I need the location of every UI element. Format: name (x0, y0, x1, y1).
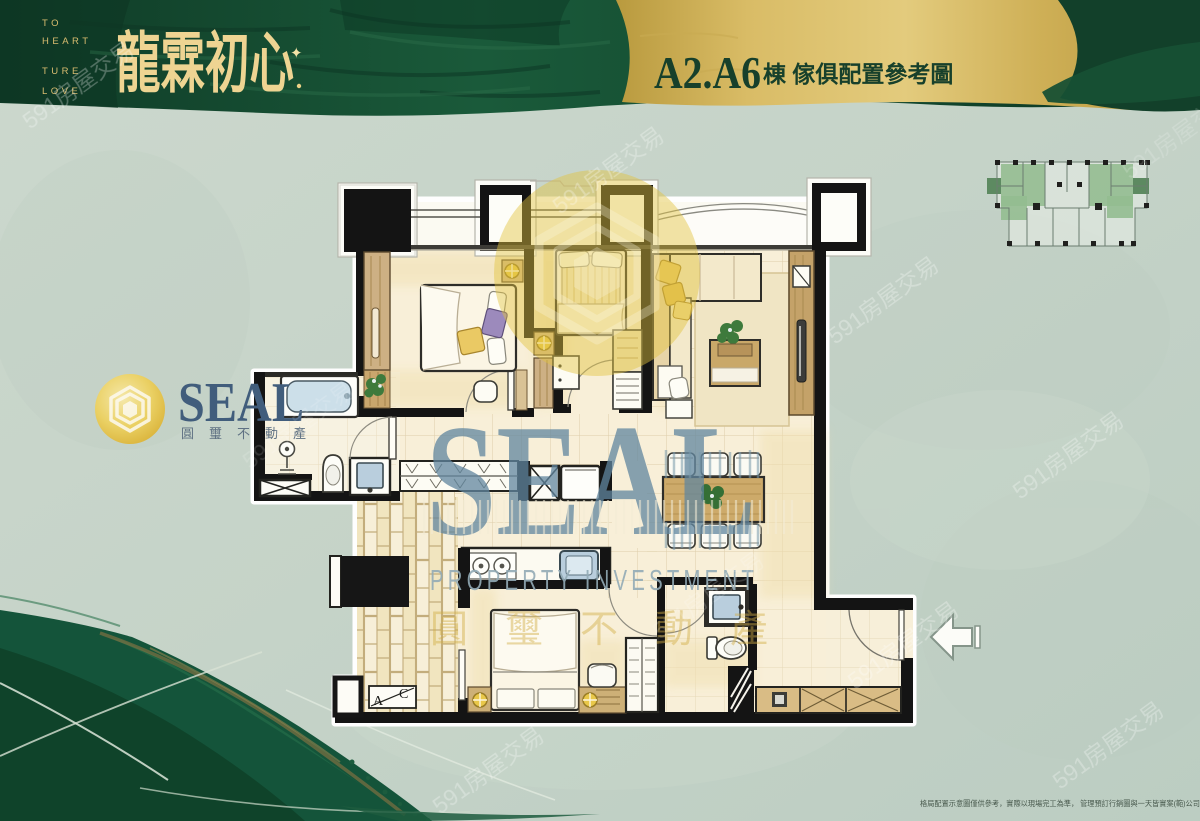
svg-text:圓璽不動產: 圓璽不動產 (430, 609, 805, 651)
svg-text:龍霖初心: 龍霖初心 (116, 28, 294, 101)
svg-text:A2.A6: A2.A6 (654, 47, 761, 98)
svg-text:TO: TO (42, 18, 62, 29)
svg-text:✦: ✦ (290, 45, 303, 62)
svg-text:SEAL: SEAL (426, 391, 756, 569)
svg-text:格局配置示意圖僅供參考，實際以現場完工為準， 管理預訂行銷: 格局配置示意圖僅供參考，實際以現場完工為準， 管理預訂行銷圖與一天皆實案(範)公… (920, 799, 1200, 808)
svg-text:棟 傢俱配置參考圖: 棟 傢俱配置參考圖 (763, 61, 953, 87)
svg-text:C: C (399, 687, 408, 702)
svg-text:HEART: HEART (42, 36, 92, 47)
svg-text:A: A (373, 694, 384, 709)
